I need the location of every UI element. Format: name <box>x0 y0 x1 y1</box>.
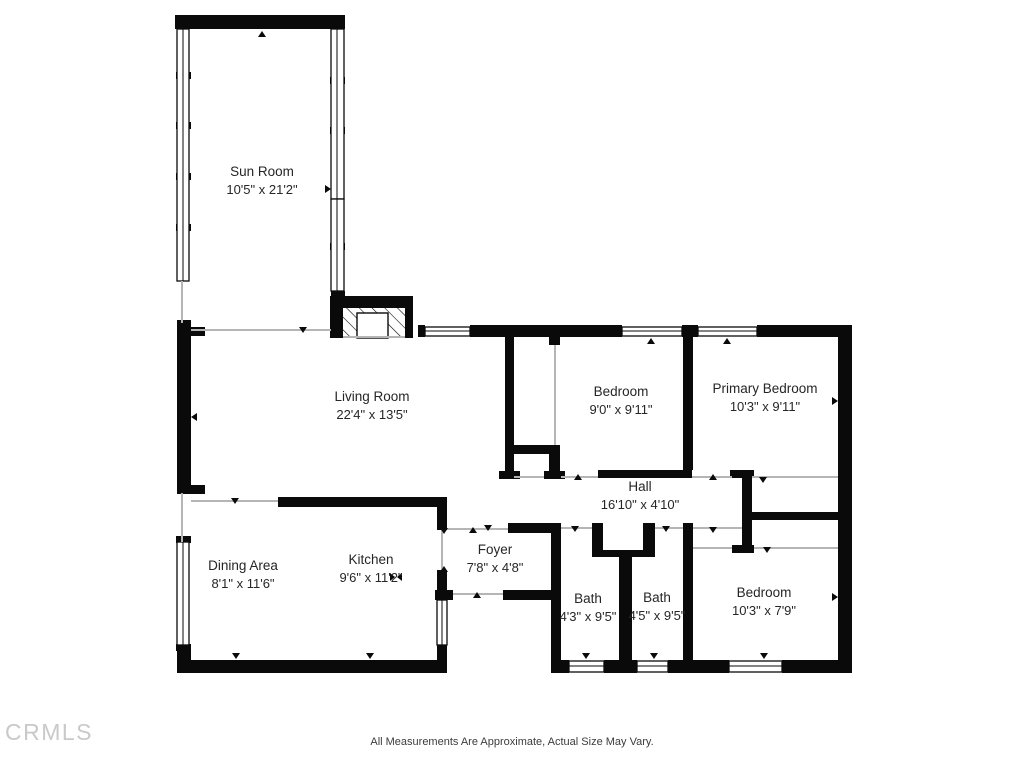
room-label-sun-room: Sun Room 10'5" x 21'2" <box>226 163 297 199</box>
room-dims: 10'5" x 21'2" <box>226 181 297 199</box>
room-dims: 7'8" x 4'8" <box>467 559 524 577</box>
room-label-bedroom: Bedroom 9'0" x 9'11" <box>589 383 652 419</box>
room-label-bath-2: Bath 4'5" x 9'5" <box>629 589 686 625</box>
room-name: Bath <box>560 590 617 608</box>
room-name: Primary Bedroom <box>712 380 817 398</box>
room-name: Hall <box>601 478 680 496</box>
room-dims: 4'5" x 9'5" <box>629 607 686 625</box>
room-dims: 22'4" x 13'5" <box>334 406 409 424</box>
room-name: Bath <box>629 589 686 607</box>
room-name: Bedroom <box>732 584 796 602</box>
room-dims: 4'3" x 9'5" <box>560 608 617 626</box>
room-name: Dining Area <box>208 557 278 575</box>
room-dims: 9'6" x 11'2" <box>339 569 402 587</box>
room-name: Living Room <box>334 388 409 406</box>
room-label-bath-1: Bath 4'3" x 9'5" <box>560 590 617 626</box>
room-dims: 16'10" x 4'10" <box>601 496 680 514</box>
room-name: Kitchen <box>339 551 402 569</box>
room-dims: 9'0" x 9'11" <box>589 401 652 419</box>
room-label-foyer: Foyer 7'8" x 4'8" <box>467 541 524 577</box>
floor-plan-drawing <box>0 0 1024 768</box>
room-label-bedroom-2: Bedroom 10'3" x 7'9" <box>732 584 796 620</box>
fireplace <box>330 296 413 338</box>
disclaimer-text: All Measurements Are Approximate, Actual… <box>0 736 1024 748</box>
room-label-kitchen: Kitchen 9'6" x 11'2" <box>339 551 402 587</box>
room-name: Sun Room <box>226 163 297 181</box>
room-dims: 10'3" x 9'11" <box>712 398 817 416</box>
room-name: Bedroom <box>589 383 652 401</box>
room-label-dining-area: Dining Area 8'1" x 11'6" <box>208 557 278 593</box>
room-label-hall: Hall 16'10" x 4'10" <box>601 478 680 514</box>
room-dims: 10'3" x 7'9" <box>732 602 796 620</box>
room-name: Foyer <box>467 541 524 559</box>
room-label-primary-bedroom: Primary Bedroom 10'3" x 9'11" <box>712 380 817 416</box>
floor-plan-page: Sun Room 10'5" x 21'2" Living Room 22'4"… <box>0 0 1024 768</box>
room-dims: 8'1" x 11'6" <box>208 575 278 593</box>
room-label-living-room: Living Room 22'4" x 13'5" <box>334 388 409 424</box>
